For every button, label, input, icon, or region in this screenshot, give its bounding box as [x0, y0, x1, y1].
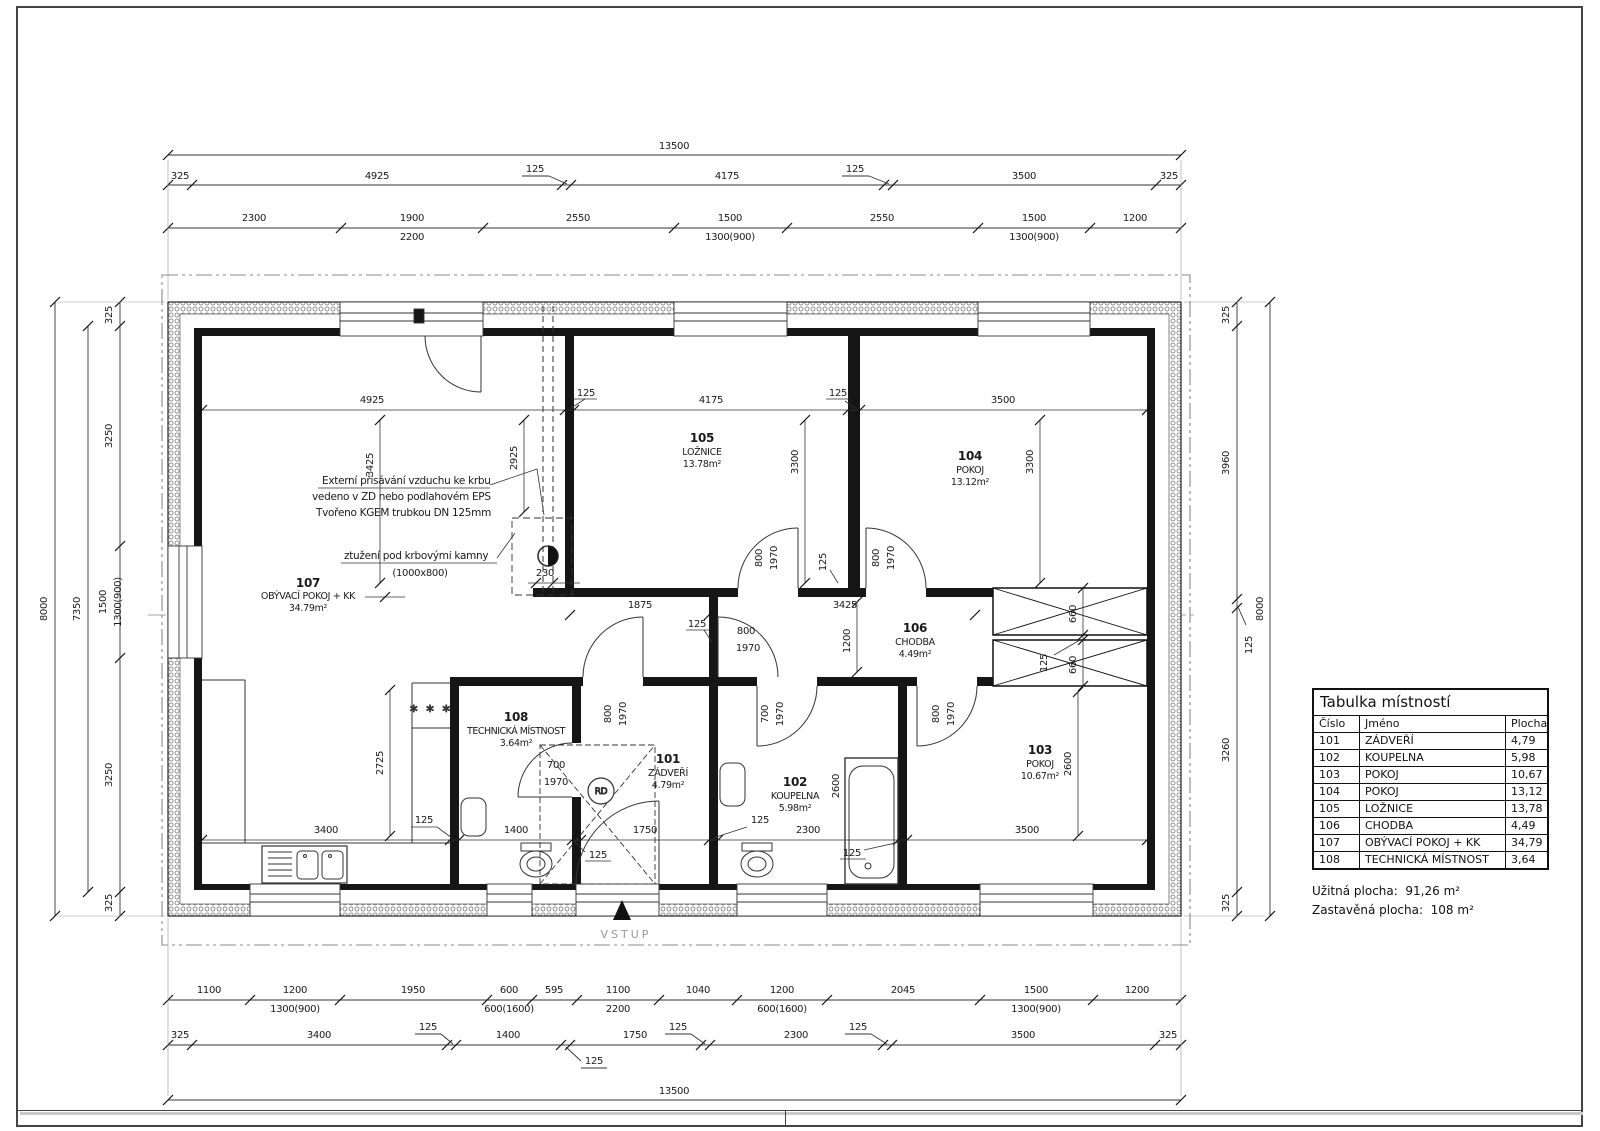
room-table: Tabulka místností ČísloJménoPlocha 101ZÁ… — [1312, 688, 1549, 870]
cell: 13,12 — [1505, 784, 1547, 801]
titleblock-shadow — [20, 1112, 1583, 1115]
built-area-note: Zastavěná plocha: 108 m² — [1312, 903, 1474, 917]
cell: 104 — [1314, 784, 1359, 801]
cell: 3,64 — [1505, 852, 1547, 868]
cell: 4,79 — [1505, 733, 1547, 750]
cell: OBÝVACÍ POKOJ + KK — [1359, 835, 1505, 852]
room-table-grid: ČísloJménoPlocha 101ZÁDVEŘÍ4,79 102KOUPE… — [1314, 716, 1547, 868]
titleblock-divider — [785, 1111, 786, 1125]
useful-area-note: Užitná plocha: 91,26 m² — [1312, 884, 1460, 898]
cell: POKOJ — [1359, 767, 1505, 784]
cell: TECHNICKÁ MÍSTNOST — [1359, 852, 1505, 868]
cell: 103 — [1314, 767, 1359, 784]
cell: 105 — [1314, 801, 1359, 818]
col-header-number: Číslo — [1314, 716, 1359, 733]
cell: 106 — [1314, 818, 1359, 835]
cell: 108 — [1314, 852, 1359, 868]
drawing-sheet: * * * RD 13500 325 4925 — [0, 0, 1600, 1131]
cell: KOUPELNA — [1359, 750, 1505, 767]
cell: 13,78 — [1505, 801, 1547, 818]
cell: 4,49 — [1505, 818, 1547, 835]
cell: 5,98 — [1505, 750, 1547, 767]
cell: 102 — [1314, 750, 1359, 767]
cell: 34,79 — [1505, 835, 1547, 852]
cell: CHODBA — [1359, 818, 1505, 835]
sheet-border — [16, 6, 1583, 1127]
cell: 101 — [1314, 733, 1359, 750]
col-header-area: Plocha — [1505, 716, 1547, 733]
titleblock-line — [16, 1110, 1583, 1111]
cell: 10,67 — [1505, 767, 1547, 784]
cell: POKOJ — [1359, 784, 1505, 801]
cell: ZÁDVEŘÍ — [1359, 733, 1505, 750]
col-header-name: Jméno — [1359, 716, 1505, 733]
cell: LOŽNICE — [1359, 801, 1505, 818]
room-table-title: Tabulka místností — [1314, 690, 1547, 716]
cell: 107 — [1314, 835, 1359, 852]
